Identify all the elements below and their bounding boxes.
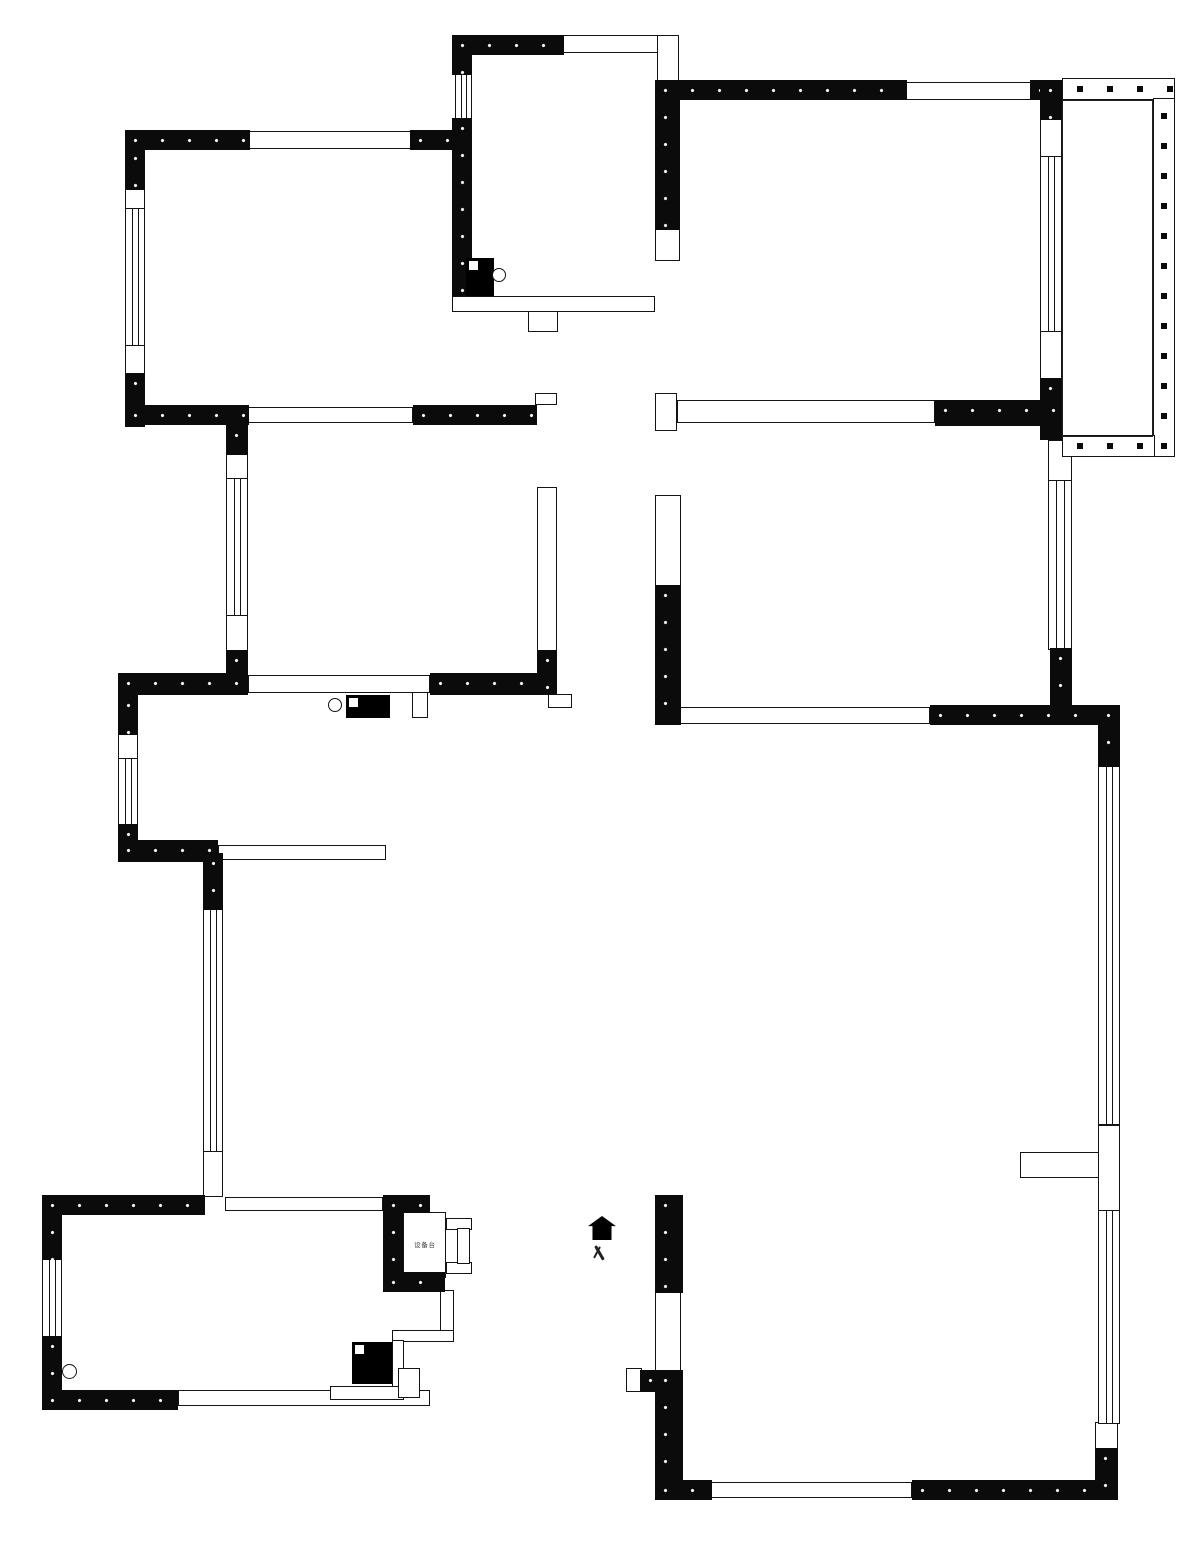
railing-post xyxy=(1161,293,1167,299)
wall-segment xyxy=(125,148,145,190)
wall-opening xyxy=(452,296,655,312)
wall-opening xyxy=(1040,330,1062,380)
window-pane-line xyxy=(1106,766,1107,1124)
balcony-railing xyxy=(1062,435,1155,457)
wall-opening xyxy=(412,692,428,718)
floor-plan: 设备台 xyxy=(0,0,1200,1544)
railing-post xyxy=(1161,353,1167,359)
railing-post xyxy=(1161,173,1167,179)
window xyxy=(1098,765,1120,1125)
railing-post xyxy=(1107,86,1113,92)
wall-opening xyxy=(118,733,138,760)
window xyxy=(125,208,145,346)
window-pane-line xyxy=(216,909,217,1151)
entrance-label xyxy=(590,1244,610,1264)
wall-opening xyxy=(1098,1125,1120,1212)
window-pane-line xyxy=(131,759,132,825)
railing-post xyxy=(1077,443,1083,449)
window-pane-line xyxy=(125,759,126,825)
wall-opening xyxy=(710,1482,912,1498)
shaft-label: 设备台 xyxy=(414,1242,436,1248)
wall-segment xyxy=(42,1195,205,1215)
window xyxy=(1040,156,1062,332)
column-notch xyxy=(469,261,478,270)
plumbing-circle xyxy=(62,1364,77,1379)
railing-post xyxy=(1077,86,1083,92)
railing-post xyxy=(1161,323,1167,329)
window-pane-line xyxy=(1054,157,1055,331)
wall-opening xyxy=(657,35,679,83)
wall-segment xyxy=(1095,1448,1118,1500)
wall-opening xyxy=(655,1290,681,1372)
window-pane-line xyxy=(1112,766,1113,1124)
window xyxy=(455,73,472,120)
plumbing-circle xyxy=(328,698,342,712)
window-pane-line xyxy=(234,479,235,615)
railing-post xyxy=(1161,143,1167,149)
wall-segment xyxy=(1098,705,1120,767)
wall-segment xyxy=(930,705,1120,725)
wall-opening xyxy=(535,393,557,405)
wall-opening xyxy=(1095,1422,1118,1450)
wall-opening xyxy=(248,675,430,693)
window-pane-line xyxy=(49,1259,50,1337)
railing-post xyxy=(1161,383,1167,389)
plumbing-circle xyxy=(492,268,506,282)
railing-inner-line xyxy=(1062,100,1153,437)
wall-opening xyxy=(457,1228,470,1264)
wall-segment xyxy=(42,1195,62,1260)
structural-column xyxy=(352,1342,392,1384)
wall-segment xyxy=(383,1272,445,1292)
window-pane-line xyxy=(1048,157,1049,331)
structural-column xyxy=(466,258,494,296)
wall-segment xyxy=(1040,80,1062,120)
wall-segment xyxy=(655,585,681,725)
wall-segment xyxy=(118,695,138,735)
window xyxy=(118,758,138,826)
railing-post xyxy=(1107,443,1113,449)
wall-opening xyxy=(248,407,413,423)
balcony-railing xyxy=(1062,78,1175,100)
wall-opening xyxy=(677,400,935,423)
wall-segment xyxy=(537,650,557,694)
window-pane-line xyxy=(138,209,139,345)
wall-opening xyxy=(1040,118,1062,158)
railing-post xyxy=(1161,263,1167,269)
wall-segment xyxy=(413,405,537,425)
wall-segment xyxy=(655,1480,712,1500)
window-pane-line xyxy=(132,209,133,345)
wall-opening xyxy=(226,614,248,652)
wall-segment xyxy=(1050,648,1072,708)
balcony-railing xyxy=(1153,98,1175,457)
railing-post xyxy=(1161,443,1167,449)
wall-segment xyxy=(125,130,250,150)
wall-segment xyxy=(655,80,680,230)
railing-post xyxy=(1161,413,1167,419)
railing-post xyxy=(1137,86,1143,92)
wall-opening xyxy=(226,453,248,480)
railing-post xyxy=(1167,86,1173,92)
wall-opening xyxy=(248,131,412,149)
window xyxy=(42,1258,62,1338)
wall-opening xyxy=(548,694,572,708)
wall-segment xyxy=(125,405,249,425)
wall-opening xyxy=(1020,1152,1100,1178)
window xyxy=(226,478,248,616)
railing-post xyxy=(1161,113,1167,119)
wall-opening xyxy=(225,1197,383,1211)
wall-opening xyxy=(125,344,145,375)
wall-segment xyxy=(912,1480,1105,1500)
window-pane-line xyxy=(461,74,462,119)
window-pane-line xyxy=(1112,1211,1113,1423)
wall-segment xyxy=(655,1195,683,1293)
window-pane-line xyxy=(55,1259,56,1337)
wall-opening xyxy=(655,225,680,261)
window-pane-line xyxy=(1064,481,1065,649)
wall-segment xyxy=(452,35,472,75)
railing-post xyxy=(1161,203,1167,209)
window xyxy=(1098,1210,1120,1424)
wall-opening xyxy=(537,487,557,652)
wall-opening xyxy=(655,495,681,587)
structural-column xyxy=(346,695,390,718)
window-pane-line xyxy=(210,909,211,1151)
wall-opening xyxy=(655,393,677,431)
wall-segment xyxy=(203,853,223,910)
shaft-box: 设备台 xyxy=(403,1212,446,1278)
wall-opening xyxy=(218,845,386,860)
wall-opening xyxy=(905,82,1032,100)
wall-segment xyxy=(655,80,907,100)
window xyxy=(1048,480,1072,650)
wall-opening xyxy=(562,35,659,53)
wall-opening xyxy=(680,707,930,724)
window-pane-line xyxy=(466,74,467,119)
railing-post xyxy=(1161,233,1167,239)
window xyxy=(203,908,223,1152)
wall-segment xyxy=(935,400,1063,426)
wall-opening xyxy=(398,1368,420,1398)
window-pane-line xyxy=(1056,481,1057,649)
column-notch xyxy=(349,698,358,707)
entrance-house-icon xyxy=(588,1216,616,1240)
railing-post xyxy=(1137,443,1143,449)
wall-segment xyxy=(42,1390,178,1410)
wall-opening xyxy=(330,1386,404,1400)
wall-segment xyxy=(226,425,248,455)
column-notch xyxy=(355,1345,364,1354)
wall-segment xyxy=(383,1195,430,1213)
window-pane-line xyxy=(240,479,241,615)
wall-opening xyxy=(203,1150,223,1197)
wall-segment xyxy=(118,673,248,695)
window-pane-line xyxy=(1106,1211,1107,1423)
